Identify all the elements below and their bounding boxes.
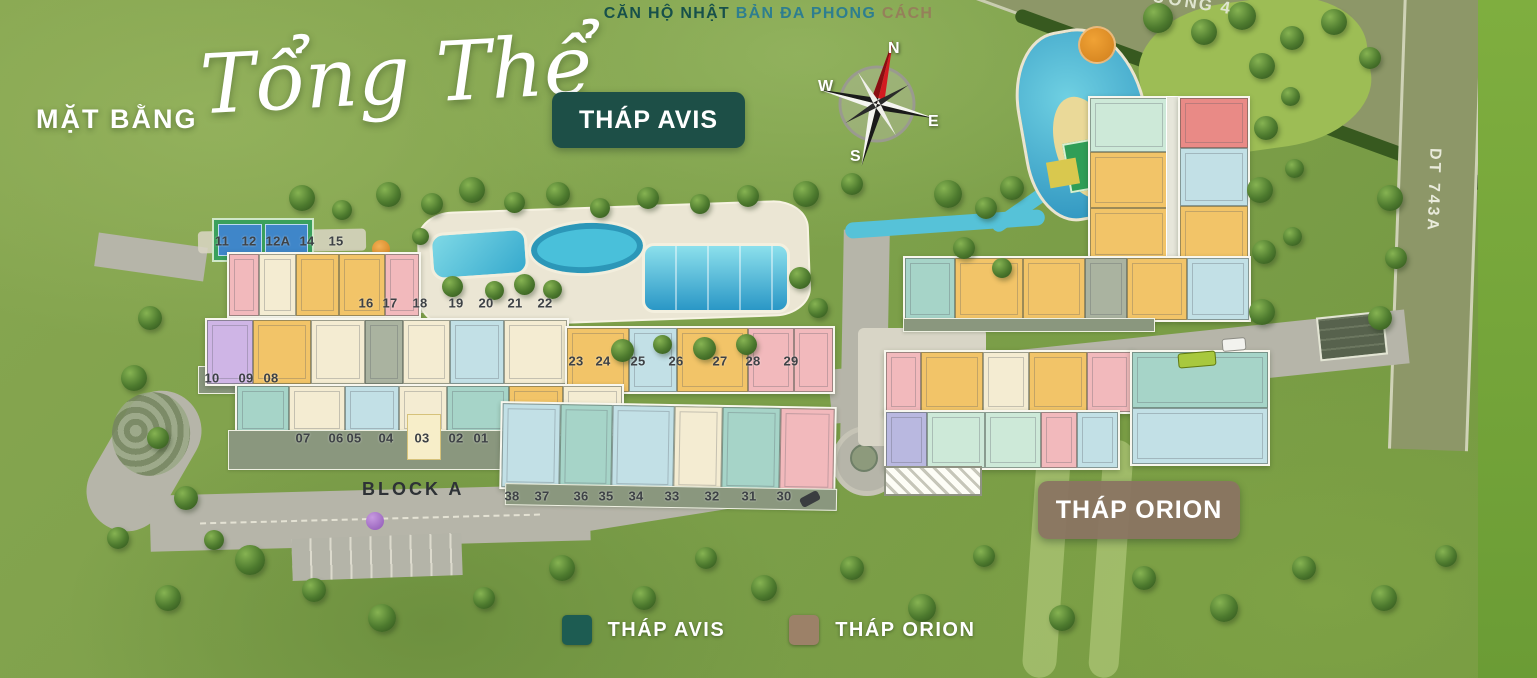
unit-number-label: 21 (507, 296, 522, 311)
unit-number-label: 11 (215, 234, 229, 249)
site-plan-scene: 111212A141516171819202122232425262728291… (0, 0, 1537, 678)
unit-number-label: 09 (238, 371, 253, 386)
unit-number-label: 28 (745, 354, 760, 369)
unit-number-label: 10 (204, 371, 219, 386)
unit-number-label: 06 (328, 431, 343, 446)
unit-number-label: 35 (598, 489, 613, 504)
legend-swatch (789, 615, 819, 645)
unit-number-label: 16 (358, 296, 373, 311)
unit-number-label: 08 (263, 371, 278, 386)
unit-number-label: 01 (473, 431, 488, 446)
unit-number-label: 25 (630, 354, 645, 369)
tagline-segment: CÁCH (882, 5, 933, 22)
legend-swatch (562, 615, 592, 645)
unit-number-label: 20 (478, 296, 493, 311)
unit-number-label: 34 (628, 489, 643, 504)
unit-number-label: 23 (568, 354, 583, 369)
unit-number-label: 29 (783, 354, 798, 369)
unit-number-label: 18 (412, 296, 427, 311)
tagline-segment: BẢN ĐA PHONG (736, 5, 882, 22)
compass-e-label: E (928, 113, 939, 131)
unit-number-label: 02 (448, 431, 463, 446)
unit-number-label: 05 (346, 431, 361, 446)
tagline: CĂN HỘ NHẬT BẢN ĐA PHONG CÁCH (0, 5, 1537, 23)
compass-n-label: N (888, 40, 900, 58)
unit-number-label: 33 (664, 489, 679, 504)
unit-number-label: 30 (776, 489, 791, 504)
unit-number-label: 15 (328, 234, 343, 249)
legend-item: THÁP AVIS (562, 615, 726, 645)
unit-number-label: 26 (668, 354, 683, 369)
unit-number-label: 12 (241, 234, 256, 249)
page-title-prefix: MẶT BẰNG (36, 104, 197, 135)
unit-number-label: 19 (448, 296, 463, 311)
unit-number-label: 17 (382, 296, 397, 311)
compass-rose (815, 32, 940, 167)
compass-w-label: W (818, 78, 833, 96)
legend-item: THÁP ORION (789, 615, 975, 645)
unit-number-label: 27 (712, 354, 727, 369)
unit-number-label: 36 (573, 489, 588, 504)
unit-number-label: 04 (378, 431, 393, 446)
orion-tower-badge[interactable]: THÁP ORION (1038, 481, 1240, 539)
unit-number-label: 38 (504, 489, 519, 504)
dt743a-road-label: DT 743A (1423, 148, 1444, 234)
unit-number-label: 12A (266, 234, 291, 249)
unit-number-label: 24 (595, 354, 610, 369)
legend-label: THÁP AVIS (608, 619, 726, 642)
avis-tower-badge[interactable]: THÁP AVIS (552, 92, 745, 148)
compass-s-label: S (850, 148, 861, 166)
unit-number-label: 31 (741, 489, 756, 504)
unit-number-label: 22 (537, 296, 552, 311)
unit-number-label: 14 (299, 234, 314, 249)
tagline-segment: CĂN HỘ NHẬT (604, 5, 736, 22)
unit-number-label: 32 (704, 489, 719, 504)
unit-number-label: 03 (414, 431, 429, 446)
legend-label: THÁP ORION (835, 619, 975, 642)
block-a-label: BLOCK A (362, 479, 464, 500)
unit-number-label: 07 (295, 431, 310, 446)
legend: THÁP AVISTHÁP ORION (0, 615, 1537, 645)
unit-number-label: 37 (534, 489, 549, 504)
